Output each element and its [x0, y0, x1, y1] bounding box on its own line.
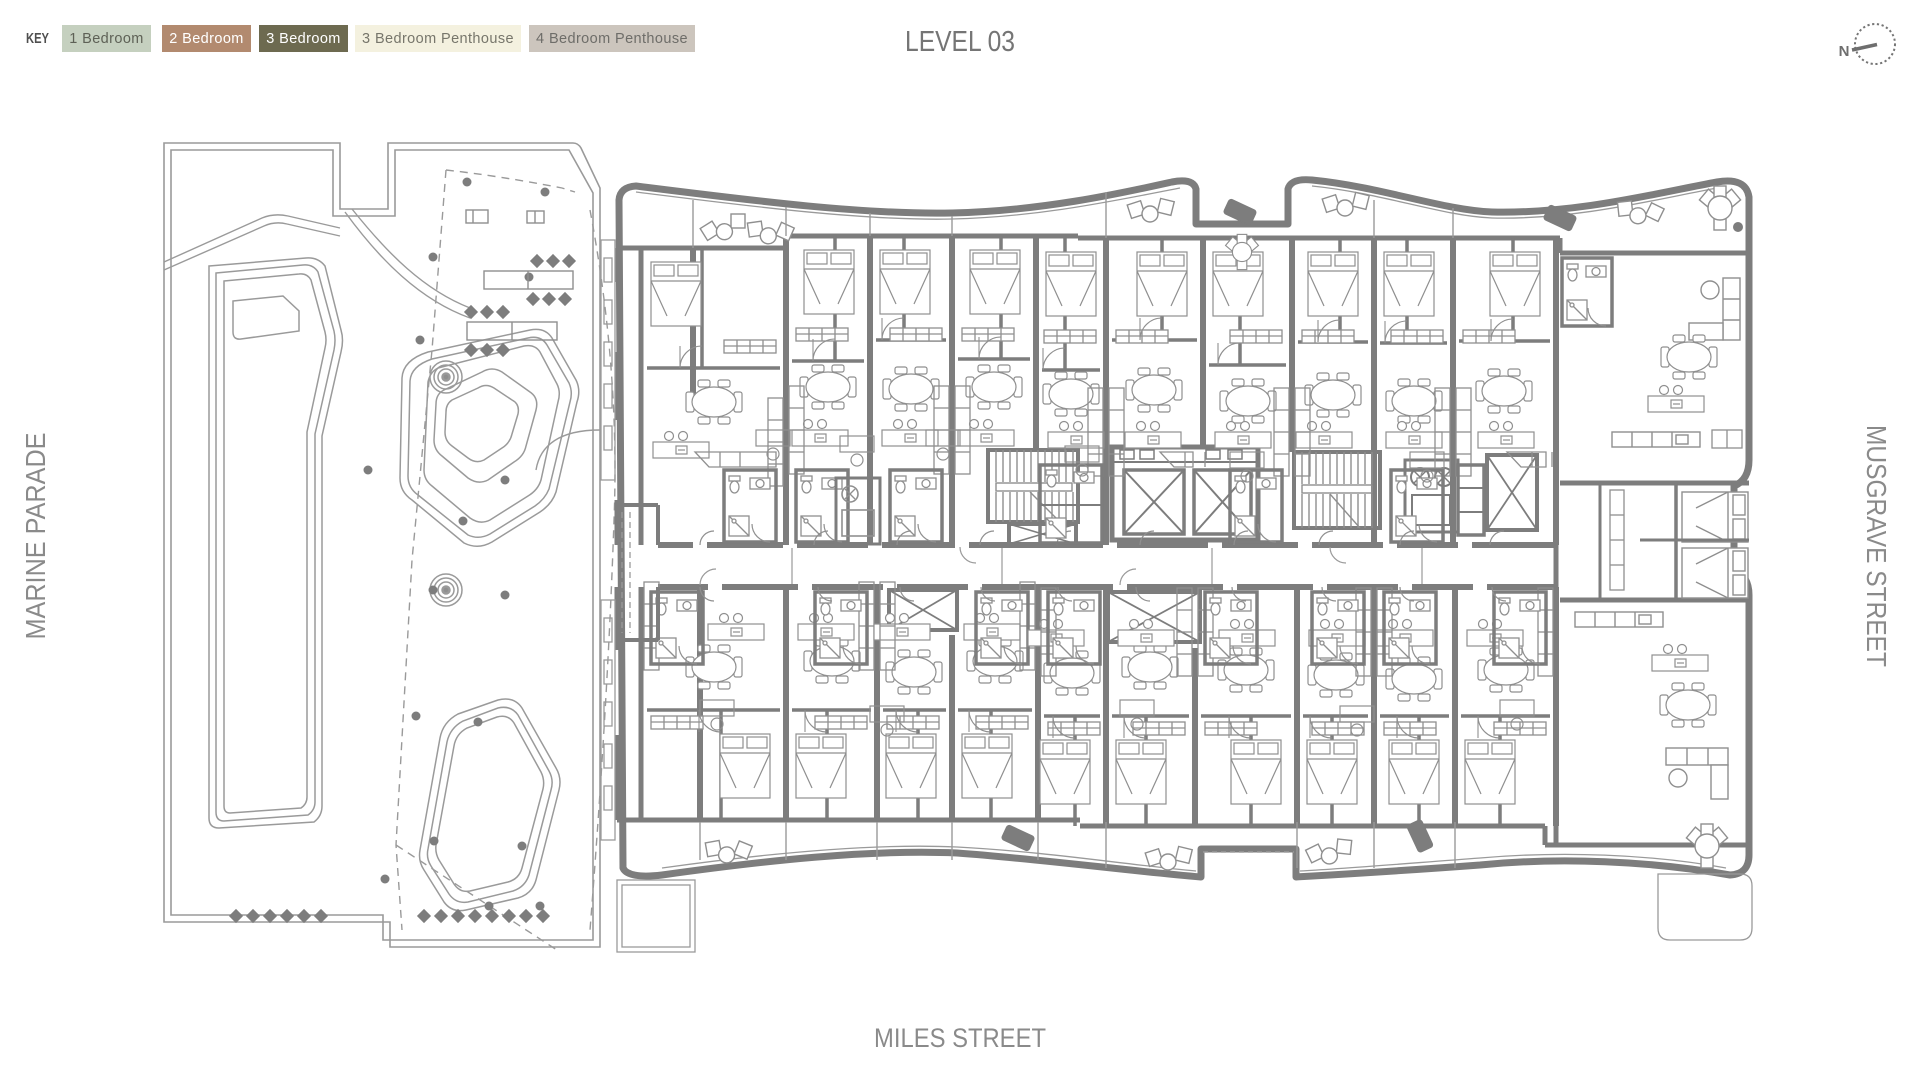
svg-text:1 Bedroom: 1 Bedroom: [69, 31, 144, 47]
svg-text:KEY: KEY: [26, 30, 49, 47]
svg-text:MILES STREET: MILES STREET: [874, 1023, 1046, 1053]
svg-text:N: N: [1839, 43, 1850, 60]
svg-text:2 Bedroom: 2 Bedroom: [169, 31, 244, 47]
svg-text:3 Bedroom Penthouse: 3 Bedroom Penthouse: [362, 31, 514, 47]
svg-text:LEVEL 03: LEVEL 03: [905, 26, 1015, 58]
svg-text:4 Bedroom Penthouse: 4 Bedroom Penthouse: [536, 31, 688, 47]
svg-text:MUSGRAVE STREET: MUSGRAVE STREET: [1861, 425, 1892, 667]
svg-text:3 Bedroom: 3 Bedroom: [266, 31, 341, 47]
svg-text:MARINE PARADE: MARINE PARADE: [20, 433, 51, 640]
